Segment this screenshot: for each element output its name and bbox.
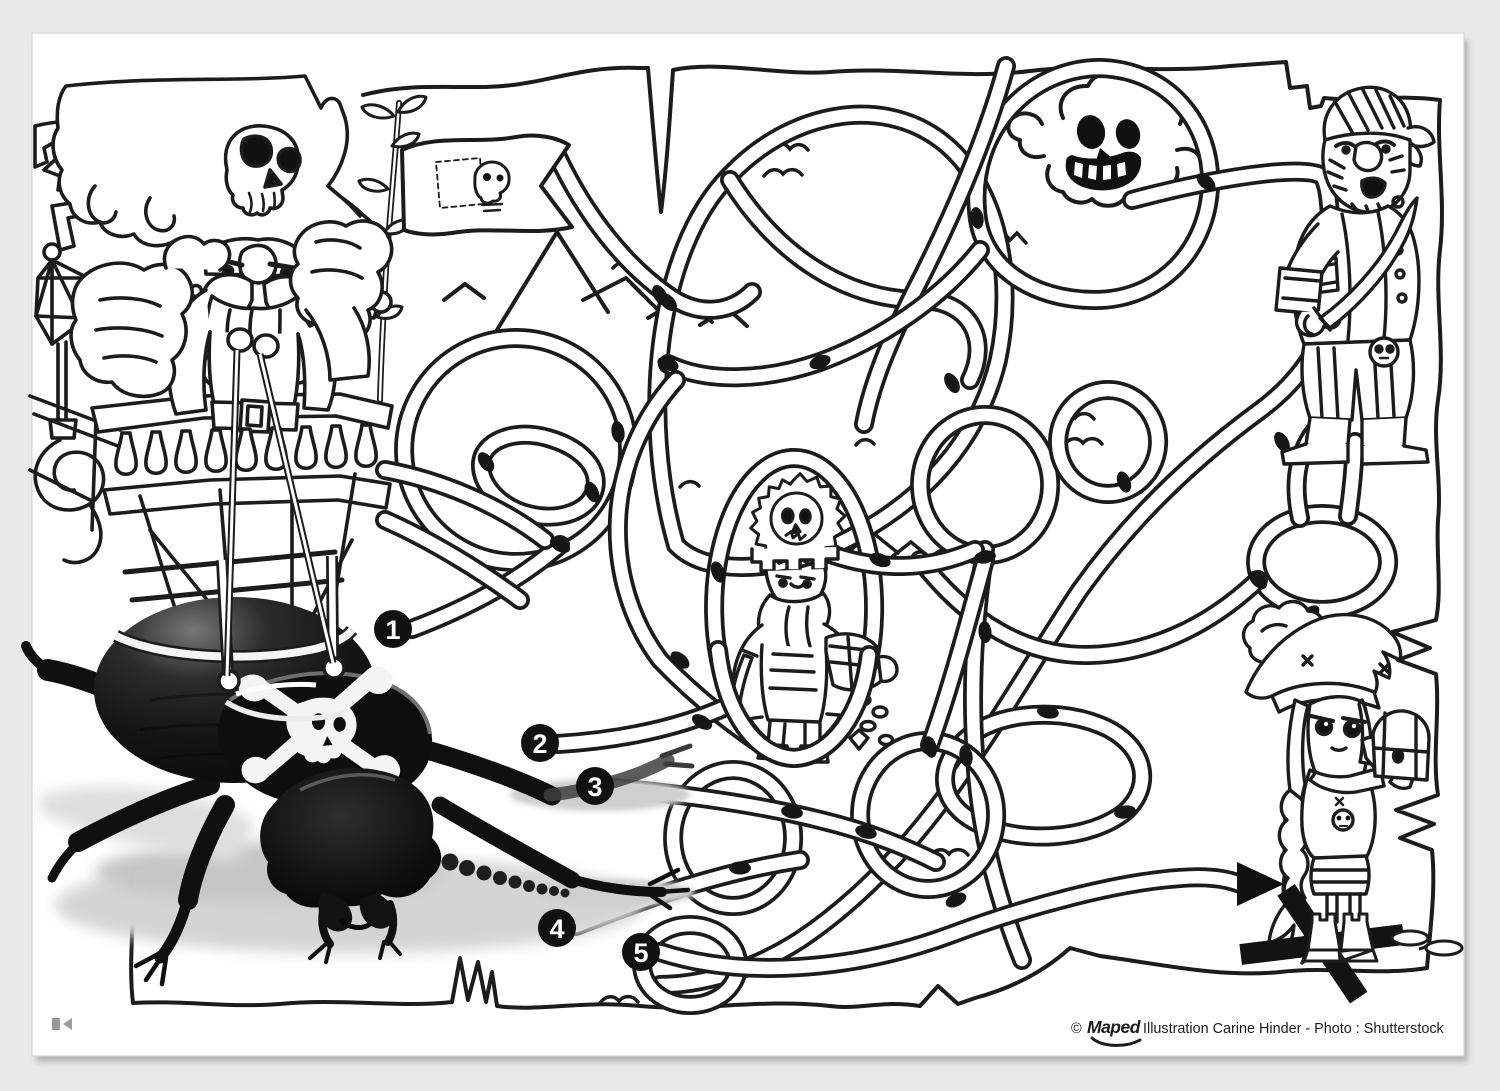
svg-text:1: 1	[385, 615, 400, 645]
svg-text:4: 4	[549, 914, 564, 944]
svg-text:©: ©	[1071, 1021, 1082, 1037]
svg-text:Illustration Carine Hinder - P: Illustration Carine Hinder - Photo : Shu…	[1143, 1021, 1445, 1037]
svg-text:3: 3	[587, 772, 602, 802]
svg-text:5: 5	[633, 938, 648, 968]
svg-text:Maped: Maped	[1087, 1017, 1141, 1037]
svg-text:2: 2	[532, 729, 547, 759]
